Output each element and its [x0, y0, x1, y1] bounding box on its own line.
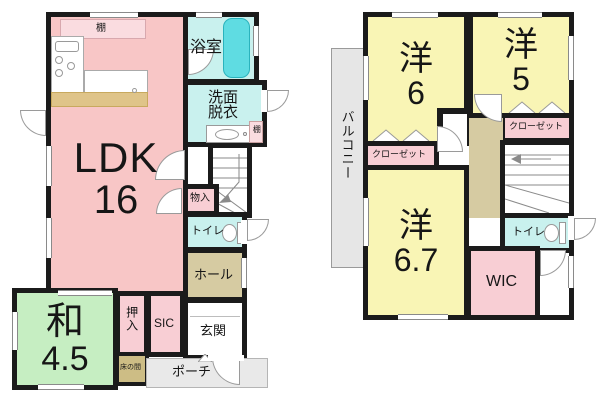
- window: [498, 12, 542, 18]
- western67-size: 6.7: [394, 244, 438, 277]
- western5-size: 5: [512, 63, 530, 96]
- wic-door-arc: [540, 250, 566, 276]
- area-hall-2f: [469, 118, 503, 218]
- kitchen-sink: [55, 41, 79, 52]
- toilet-2f-door-arc: [574, 218, 596, 240]
- closet-a-folding-door-icon: [372, 128, 430, 141]
- window: [196, 12, 222, 18]
- sic-label: SIC: [154, 317, 174, 330]
- porch-label: ポーチ: [172, 365, 211, 379]
- counter-bar: [51, 92, 148, 107]
- window: [38, 384, 84, 390]
- door-opening: [208, 355, 244, 361]
- door-opening: [261, 90, 267, 112]
- toilet-2f-label: トイレ: [512, 227, 545, 239]
- western5-label: 洋 5: [473, 18, 569, 106]
- bath-label: 浴室: [190, 40, 222, 57]
- hall-1f-label: ホール: [194, 268, 233, 282]
- toilet-1f-label: トイレ: [191, 226, 224, 238]
- oshiire-label: 押入: [125, 306, 138, 332]
- window: [392, 12, 438, 18]
- wic-label: WIC: [486, 274, 517, 291]
- stairs-2f-treads: [505, 145, 569, 213]
- wall: [538, 315, 574, 320]
- window: [363, 56, 369, 100]
- window: [253, 26, 259, 56]
- floor2-plan: バルコニー 洋 6 クローゼット 洋 5 クローゼット: [300, 0, 600, 400]
- window: [46, 146, 52, 186]
- sliding-door: [58, 290, 112, 296]
- stove-burner-icon: [55, 69, 63, 77]
- stove-burner-icon: [67, 62, 75, 70]
- washitsu-size: 4.5: [41, 342, 88, 377]
- toilet-2f-fixture: [544, 219, 566, 247]
- bathtub: [223, 18, 250, 78]
- window: [12, 312, 18, 350]
- floorplan-canvas: LDK 16 棚 浴室 洗面 脱衣 棚: [0, 0, 600, 400]
- window: [398, 314, 448, 320]
- washroom-label: 洗面 脱衣: [188, 86, 258, 124]
- washroom-label-line2: 脱衣: [208, 105, 238, 120]
- window: [46, 218, 52, 258]
- door-opening: [568, 216, 574, 240]
- washitsu-label: 和 4.5: [16, 296, 114, 384]
- toilet-1f-door-arc: [247, 219, 269, 241]
- ldk-exterior-door-arc: [20, 110, 46, 136]
- window: [90, 12, 138, 18]
- closet-b-label: クローゼット: [509, 122, 563, 131]
- entrance-label: 玄関: [200, 324, 226, 338]
- window: [568, 256, 574, 288]
- door-opening: [241, 220, 247, 244]
- storage-label: 物入: [190, 194, 210, 205]
- washroom-shelf-label: 棚: [252, 125, 260, 134]
- stove-burner-icon: [55, 56, 63, 64]
- western6-name: 洋: [399, 42, 433, 77]
- ldk-name: LDK: [74, 137, 159, 180]
- entrance-step-line: [190, 316, 240, 317]
- ldk-size: 16: [94, 180, 139, 221]
- floor1-plan: LDK 16 棚 浴室 洗面 脱衣 棚: [0, 0, 300, 400]
- western6-size: 6: [407, 77, 425, 110]
- window: [568, 36, 574, 80]
- washitsu-name: 和: [46, 303, 84, 342]
- western6-label: 洋 6: [368, 24, 464, 128]
- tokonoma-label: 床の間: [120, 364, 141, 371]
- western5-name: 洋: [504, 28, 538, 63]
- stairs-2f: [500, 140, 574, 218]
- washroom-label-line1: 洗面: [208, 90, 238, 105]
- window: [241, 258, 247, 288]
- closet-a-label: クローゼット: [372, 150, 426, 159]
- balcony-label: バルコニー: [340, 110, 354, 180]
- washbasin: [206, 125, 252, 143]
- window: [363, 198, 369, 246]
- western67-name: 洋: [399, 209, 433, 244]
- kitchen-faucet-icon: [132, 88, 137, 93]
- western67-label: 洋 6.7: [368, 180, 464, 306]
- kitchen-shelf-label: 棚: [96, 24, 106, 35]
- washroom-back-door-arc: [267, 90, 289, 112]
- ldk-label: LDK 16: [52, 122, 180, 236]
